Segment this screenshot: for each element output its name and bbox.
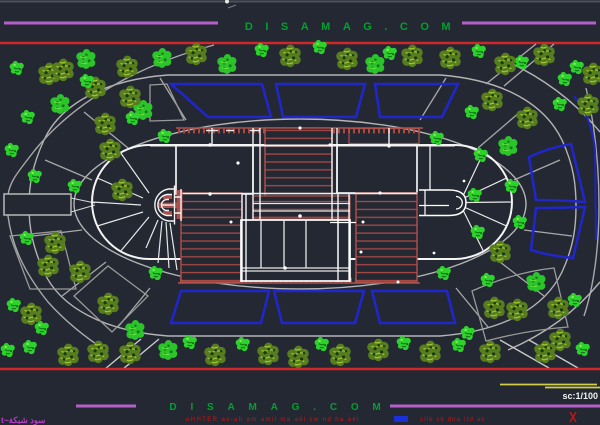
svg-text:sllk sk dna ltd ak: sllk sk dna ltd ak [420, 417, 486, 423]
svg-text:t~سود شبكة: t~سود شبكة [1, 415, 45, 425]
svg-text:sc:1/100: sc:1/100 [562, 391, 598, 401]
svg-text:DISAMAG.COM: DISAMAG.COM [245, 21, 463, 33]
svg-text:uHHTER as-ah am amil ma akl sw: uHHTER as-ah am amil ma akl sw nd ha akl [186, 417, 360, 423]
svg-text:DISAMAG.COM: DISAMAG.COM [169, 402, 394, 413]
